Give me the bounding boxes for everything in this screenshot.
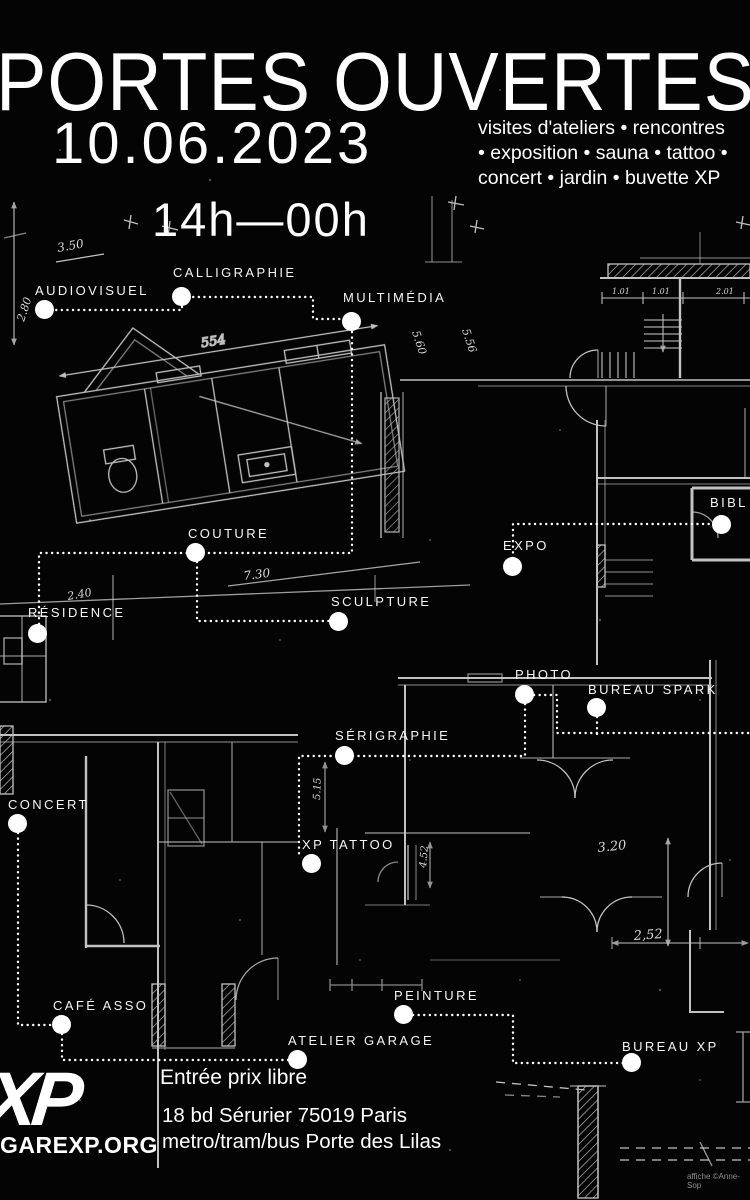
- room-dot-concert: [8, 814, 27, 833]
- room-label-peinture: PEINTURE: [394, 988, 479, 1003]
- website-url: GAREXP.ORG: [0, 1132, 158, 1159]
- room-dot-audiovisuel: [35, 300, 54, 319]
- room-label-bureau-spark: BUREAU SPARK: [588, 682, 718, 697]
- room-label-couture: COUTURE: [188, 526, 269, 541]
- room-dot-multimedia: [342, 312, 361, 331]
- room-label-multimedia: MULTIMÉDIA: [343, 290, 446, 305]
- room-label-sculpture: SCULPTURE: [331, 594, 431, 609]
- room-dot-calligraphie: [172, 287, 191, 306]
- room-label-photo: PHOTO: [515, 667, 573, 682]
- poster-credit: affiche ©Anne-Sop: [687, 1172, 750, 1190]
- activities-list: visites d'ateliers • rencontres • exposi…: [478, 116, 728, 191]
- room-dot-xp-tattoo: [302, 854, 321, 873]
- room-label-atelier-garage: ATELIER GARAGE: [288, 1033, 434, 1048]
- room-dot-serigraphie: [335, 746, 354, 765]
- room-label-xp-tattoo: XP TATTOO: [302, 837, 395, 852]
- room-label-residence: RÉSIDENCE: [28, 605, 125, 620]
- room-label-bibliotheque: BIBL: [710, 495, 748, 510]
- room-dot-cafe-asso: [52, 1015, 71, 1034]
- activities-line-3: concert • jardin • buvette XP: [478, 166, 728, 191]
- room-dot-residence: [28, 624, 47, 643]
- room-label-calligraphie: CALLIGRAPHIE: [173, 265, 296, 280]
- room-dot-bibliotheque: [712, 515, 731, 534]
- street-address: 18 bd Sérurier 75019 Paris: [162, 1104, 407, 1128]
- activities-line-2: • exposition • sauna • tattoo •: [478, 141, 728, 166]
- room-label-concert: CONCERT: [8, 797, 89, 812]
- transit-info: metro/tram/bus Porte des Lilas: [162, 1130, 441, 1154]
- entry-price: Entrée prix libre: [160, 1066, 307, 1090]
- event-time: 14h—00h: [152, 192, 370, 247]
- xp-logo: XP: [0, 1056, 81, 1143]
- room-label-expo: EXPO: [503, 538, 549, 553]
- room-dot-expo: [503, 557, 522, 576]
- room-dot-couture: [186, 543, 205, 562]
- room-dot-peinture: [394, 1005, 413, 1024]
- room-dot-bureau-xp: [622, 1053, 641, 1072]
- activities-line-1: visites d'ateliers • rencontres: [478, 116, 728, 141]
- room-dot-photo: [515, 685, 534, 704]
- room-label-audiovisuel: AUDIOVISUEL: [35, 283, 149, 298]
- poster-root: 554: [0, 0, 750, 1200]
- room-label-bureau-xp: BUREAU XP: [622, 1039, 719, 1054]
- room-dot-sculpture: [329, 612, 348, 631]
- room-dot-bureau-spark: [587, 698, 606, 717]
- room-label-serigraphie: SÉRIGRAPHIE: [335, 728, 450, 743]
- event-date: 10.06.2023: [52, 110, 372, 177]
- room-label-cafe-asso: CAFÉ ASSO: [53, 998, 148, 1013]
